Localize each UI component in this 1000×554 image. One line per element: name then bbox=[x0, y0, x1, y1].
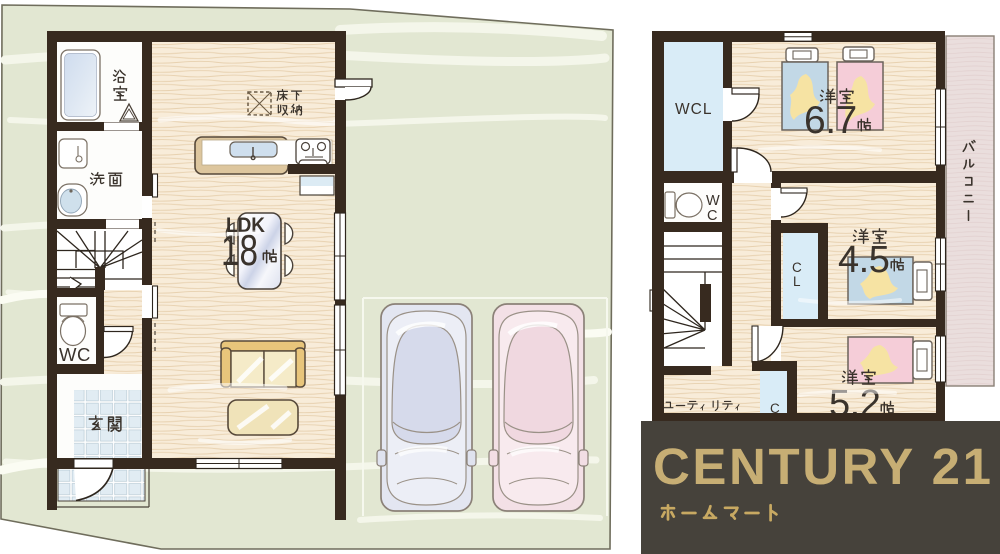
svg-text:C: C bbox=[707, 208, 717, 224]
svg-text:WCL: WCL bbox=[675, 101, 712, 118]
svg-text:C: C bbox=[792, 260, 802, 275]
svg-text:L: L bbox=[793, 274, 801, 289]
svg-text:CENTURY 21: CENTURY 21 bbox=[653, 438, 994, 495]
svg-text:4.5: 4.5 bbox=[838, 239, 889, 281]
svg-text:WC: WC bbox=[59, 344, 91, 365]
svg-text:W: W bbox=[706, 193, 720, 209]
svg-text:6.7: 6.7 bbox=[804, 99, 857, 142]
